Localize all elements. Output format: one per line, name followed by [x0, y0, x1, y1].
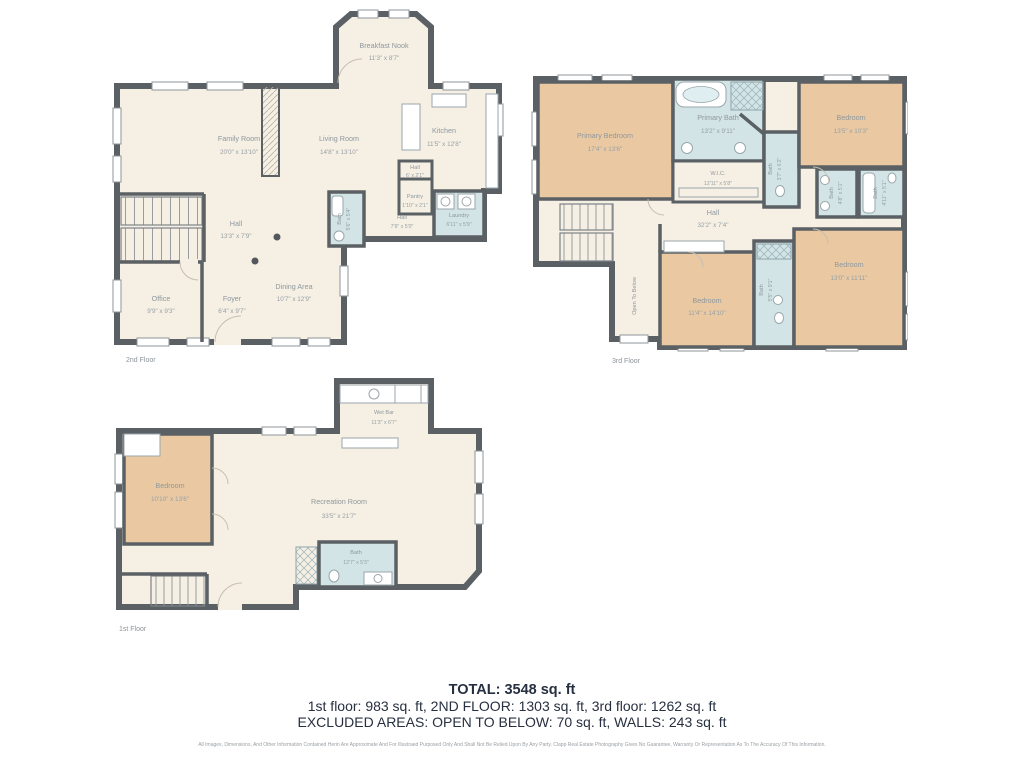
room-dims-label: 13'5" x 10'3" [834, 128, 869, 135]
room-name-label: Primary Bath [697, 113, 739, 122]
room-bedroom-top-right [799, 82, 904, 167]
sink-icon [774, 296, 783, 305]
room-dims-label: 13'3" x 7'9" [220, 233, 251, 240]
window [137, 338, 169, 346]
toilet-icon [329, 570, 339, 582]
toilet-icon [334, 231, 344, 241]
area-summary: TOTAL: 3548 sq. ft 1st floor: 983 sq. ft… [0, 682, 1024, 730]
room-dims-label: 10'7" x 12'9" [277, 296, 312, 303]
room-name-label: Living Room [319, 134, 359, 143]
window [443, 82, 469, 90]
room-bath-left [817, 169, 857, 217]
floorplan-2nd-floor: Bath 5'6" x 5'4" Laundry 6'11" x 5'9" Ha… [112, 8, 512, 358]
room-name-label: Hall [410, 165, 420, 171]
window [115, 492, 123, 528]
summary-total: TOTAL: 3548 sq. ft [0, 682, 1024, 698]
vanity [364, 572, 392, 585]
staircase [151, 576, 206, 606]
window [340, 266, 348, 296]
floorplan-3rd-floor: Primary Bedroom 17'4" x 13'6" Primary Ba… [528, 74, 908, 354]
window [389, 10, 409, 18]
room-dims-label: 5'6" x 5'4" [346, 208, 352, 231]
room-name-label: Foyer [223, 294, 242, 303]
room-dims-label: 33'5" x 21'7" [322, 513, 357, 520]
room-dims-label: 20'0" x 13'10" [220, 149, 258, 156]
floor-caption-3rd: 3rd Floor [612, 358, 640, 365]
room-name-label: Wet Bar [374, 410, 394, 416]
room-dims-label: 1'10" x 2'1" [402, 203, 428, 209]
room-name-label: Bath [829, 187, 835, 199]
room-name-label: Bedroom [836, 113, 865, 122]
room-dims-label: 12'11" x 5'8" [704, 181, 732, 187]
room-dims-label: 11'3" x 6'7" [371, 420, 396, 426]
room-name-label: Bedroom [155, 481, 184, 490]
wet-bar-counter [342, 438, 398, 448]
wet-bar-appliance [395, 385, 421, 403]
room-dims-label: 13'2" x 9'11" [701, 128, 735, 135]
sink-icon [735, 143, 746, 154]
window [115, 454, 123, 484]
kitchen-island [402, 104, 420, 150]
room-dims-label: 32'2" x 7'4" [697, 222, 728, 229]
sink-icon [682, 143, 693, 154]
room-name-label: Hall [707, 208, 720, 217]
room-name-label: Breakfast Nook [359, 41, 409, 50]
window [620, 335, 648, 343]
room-dims-label: 13'0" x 11'11" [830, 275, 867, 282]
room-name-label: W.I.C. [710, 171, 726, 177]
summary-floors: 1st floor: 983 sq. ft, 2ND FLOOR: 1303 s… [0, 698, 1024, 714]
open-to-below-label: Open To Below [632, 276, 638, 315]
floor2-outline [117, 14, 499, 342]
sink-icon [332, 196, 343, 216]
room-dims-label: 6'11" x 5'9" [446, 222, 471, 228]
staircase [560, 204, 613, 261]
floorplan-1st-floor: Bedroom 10'10" x 13'6" Wet Bar 11'3" x 6… [112, 376, 512, 616]
room-name-label: Bedroom [692, 296, 721, 305]
door-gap [180, 259, 198, 265]
window [358, 10, 378, 18]
sink-icon [821, 202, 830, 211]
room-dims-label: 10'10" x 13'6" [151, 496, 189, 503]
window [113, 156, 121, 182]
toilet-icon [775, 313, 784, 324]
toilet-icon [776, 186, 785, 197]
shower-icon [731, 82, 763, 110]
window [272, 338, 300, 346]
kitchen-counter [432, 94, 466, 107]
bathtub-icon [683, 87, 719, 103]
room-dims-label: 11'3" x 8'7" [369, 55, 400, 62]
window [475, 451, 483, 483]
room-dims-label: 14'8" x 13'10" [320, 149, 358, 156]
room-name-label: Bedroom [834, 260, 863, 269]
kitchen-counter [486, 94, 498, 188]
room-name-label: Bath [337, 213, 343, 225]
room-dims-label: 3'7" x 6'2" [777, 158, 783, 181]
room-name-label: Pantry [407, 194, 423, 200]
room-bedroom-bottom-right [794, 229, 904, 347]
column-post [274, 234, 281, 241]
room-primary-bedroom [538, 82, 673, 199]
window [207, 82, 243, 90]
floor-caption-1st: 1st Floor [119, 626, 146, 633]
room-dims-label: 6'4" x 9'7" [218, 308, 246, 315]
door-gap [218, 603, 242, 610]
column-post [252, 258, 259, 265]
room-name-label: Laundry [449, 213, 469, 219]
room-name-label: Recreation Room [311, 497, 367, 506]
room-dims-label: 5'5" x 9'1" [768, 279, 774, 302]
room-name-label: Bath [350, 550, 362, 556]
room-name-label: Office [152, 294, 171, 303]
closet [664, 241, 724, 252]
washer-icon [437, 194, 454, 209]
summary-excluded: EXCLUDED AREAS: OPEN TO BELOW: 70 sq. ft… [0, 714, 1024, 730]
room-dims-label: 4'11" x 5'1" [882, 180, 888, 205]
disclaimer-text: All Images, Dimensions, And Other Inform… [0, 742, 1024, 748]
staircase [121, 197, 202, 261]
room-name-label: Family Room [218, 134, 260, 143]
fireplace [262, 86, 279, 176]
shower-icon [296, 547, 317, 584]
window [475, 494, 483, 524]
room-dims-label: 12'7" x 5'3" [343, 560, 369, 566]
room-name-label: Bath [873, 187, 879, 199]
floorplan-page: Bath 5'6" x 5'4" Laundry 6'11" x 5'9" Ha… [0, 0, 1024, 768]
floor-caption-2nd: 2nd Floor [126, 357, 156, 364]
window [187, 338, 209, 346]
window [152, 82, 188, 90]
window [262, 427, 286, 435]
room-dims-label: 17'4" x 13'6" [588, 146, 623, 153]
window [294, 427, 316, 435]
shower-icon [757, 244, 791, 259]
closet [124, 434, 160, 456]
window [113, 108, 121, 144]
window [113, 280, 121, 312]
room-dims-label: 11'5" x 12'8" [427, 141, 461, 148]
room-dims-label: 9'9" x 9'3" [147, 308, 175, 315]
door-gap [214, 338, 241, 345]
dryer-icon [458, 194, 475, 209]
room-name-label: Hall [230, 219, 243, 228]
room-name-label: Bath [759, 284, 765, 296]
toilet-icon [888, 173, 896, 183]
room-name-label: Kitchen [432, 126, 456, 135]
room-dims-label: 4'8" x 5'1" [838, 182, 844, 205]
window [308, 338, 330, 346]
room-name-label: Bath [768, 163, 774, 175]
room-dims-label: 7'9" x 5'0" [391, 224, 414, 230]
room-dims-label: 11'4" x 14'10" [688, 310, 726, 317]
room-name-label: Dining Area [275, 282, 312, 291]
room-dims-label: 6' x 2'1" [406, 173, 424, 179]
room-name-label: Hall [397, 215, 407, 221]
room-name-label: Primary Bedroom [577, 131, 633, 140]
